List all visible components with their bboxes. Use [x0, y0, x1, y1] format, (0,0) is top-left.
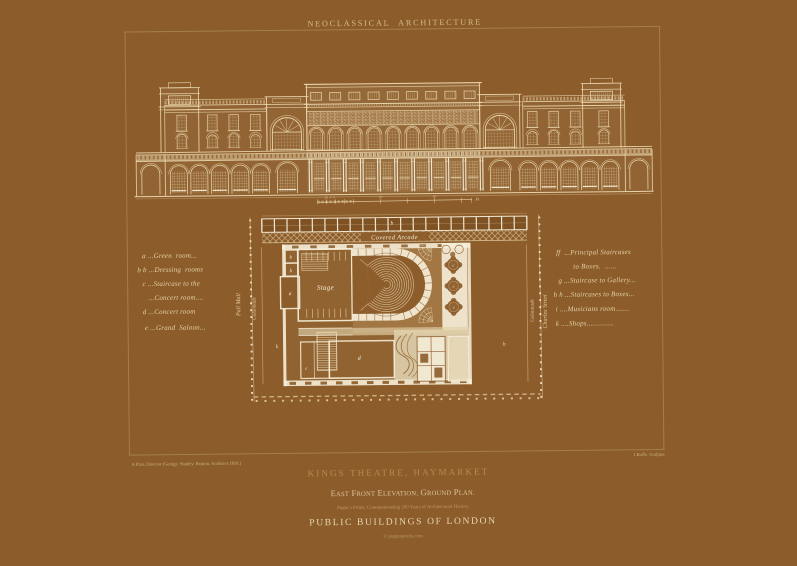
svg-text:e ...Grand Saloon...: e ...Grand Saloon...: [145, 323, 206, 332]
svg-text:ff ...Principal Staircases: ff ...Principal Staircases: [556, 248, 631, 257]
svg-text:b: b: [390, 221, 393, 227]
svg-text:10 5 0: 10 5 0: [324, 196, 335, 200]
svg-text:A Plan, Director (George. Stan: A Plan, Director (George. Stanley. Repto…: [132, 461, 242, 468]
svg-text:i ....Musicians room.......: i ....Musicians room.......: [556, 305, 630, 314]
svg-text:Pugin’s Prints: Commemorating: Pugin’s Prints: Commemorating 200 Years …: [337, 505, 469, 511]
svg-text:© puginsprints.com: © puginsprints.com: [383, 533, 423, 539]
svg-text:...Concert room....: ...Concert room....: [149, 293, 204, 302]
svg-text:g ...Staircase to Gallery...: g ...Staircase to Gallery...: [558, 276, 635, 285]
svg-text:e: e: [452, 263, 454, 268]
svg-text:Ft: Ft: [475, 197, 481, 202]
svg-text:20: 20: [379, 195, 383, 199]
svg-text:NEOCLASSICAL ARCHITECTURE: NEOCLASSICAL ARCHITECTURE: [307, 18, 482, 29]
svg-text:PUBLIC BUILDINGS OF LONDON: PUBLIC BUILDINGS OF LONDON: [309, 515, 496, 528]
svg-text:c ...Staircase to the: c ...Staircase to the: [142, 280, 200, 289]
svg-text:e: e: [453, 305, 455, 310]
svg-text:Colonnade: Colonnade: [530, 298, 536, 322]
svg-text:EAST FRONT ELEVATION, GROUND P: EAST FRONT ELEVATION, GROUND PLAN.: [331, 487, 475, 499]
svg-text:d ...Concert room: d ...Concert room: [143, 308, 196, 317]
svg-text:e: e: [453, 284, 455, 289]
svg-text:Pall Mall: Pall Mall: [236, 293, 242, 317]
svg-text:h h ...Staircases to Boxes...: h h ...Staircases to Boxes...: [554, 290, 635, 299]
svg-text:a ...Green room...: a ...Green room...: [142, 252, 197, 261]
svg-text:k: k: [276, 344, 279, 350]
svg-text:Colonnade: Colonnade: [252, 296, 258, 320]
svg-text:b b ...Dressing rooms: b b ...Dressing rooms: [137, 265, 203, 274]
svg-text:k ....Shops..............: k ....Shops..............: [556, 319, 614, 328]
svg-text:Charles Street: Charles Street: [543, 294, 549, 329]
svg-text:40: 40: [433, 195, 437, 199]
svg-text:a: a: [289, 291, 292, 297]
svg-text:Covered Arcade: Covered Arcade: [371, 234, 418, 241]
svg-text:J.Roffe. Sculptor: J.Roffe. Sculptor: [634, 452, 666, 457]
svg-text:Stage: Stage: [317, 284, 334, 292]
svg-text:h: h: [503, 342, 506, 348]
svg-text:KINGS THEATRE, HAYMARKET: KINGS THEATRE, HAYMARKET: [308, 467, 490, 479]
svg-text:to Boxes. ......: to Boxes. ......: [573, 262, 616, 270]
